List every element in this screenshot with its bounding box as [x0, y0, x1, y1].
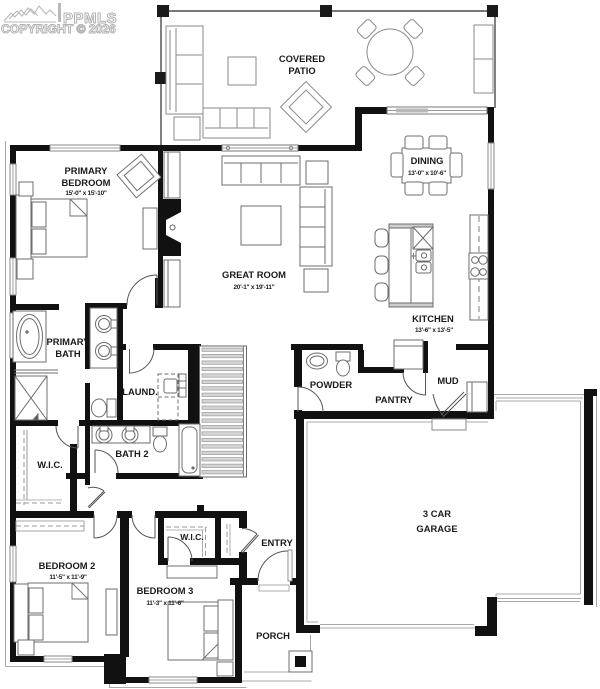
- svg-text:PANTRY: PANTRY: [375, 394, 413, 405]
- svg-text:13'-6" x 13'-5": 13'-6" x 13'-5": [415, 327, 453, 334]
- svg-text:15'-0" x 15'-10": 15'-0" x 15'-10": [65, 190, 107, 197]
- svg-text:GREAT ROOM: GREAT ROOM: [222, 269, 286, 280]
- svg-text:PRIMARY: PRIMARY: [65, 165, 109, 176]
- svg-text:PORCH: PORCH: [256, 630, 290, 641]
- svg-text:W.I.C.: W.I.C.: [37, 459, 63, 470]
- svg-text:BEDROOM 2: BEDROOM 2: [39, 560, 96, 571]
- svg-text:20'-1" x 19'-11": 20'-1" x 19'-11": [234, 284, 275, 291]
- svg-text:PATIO: PATIO: [288, 65, 315, 76]
- svg-text:DINING: DINING: [411, 155, 444, 166]
- svg-text:BATH 2: BATH 2: [115, 448, 148, 459]
- svg-text:W.I.C.: W.I.C.: [180, 532, 203, 542]
- svg-text:BEDROOM 3: BEDROOM 3: [137, 585, 194, 596]
- svg-text:LAUND.: LAUND.: [122, 386, 157, 397]
- svg-text:MUD: MUD: [437, 375, 459, 386]
- svg-text:KITCHEN: KITCHEN: [412, 313, 454, 324]
- svg-text:COPYRIGHT © 2026: COPYRIGHT © 2026: [1, 22, 116, 36]
- svg-text:11'-5" x 11'-9": 11'-5" x 11'-9": [49, 574, 87, 581]
- svg-text:GARAGE: GARAGE: [416, 523, 457, 534]
- svg-text:POWDER: POWDER: [310, 379, 352, 390]
- svg-text:PRIMARY: PRIMARY: [47, 336, 91, 347]
- svg-text:COVERED: COVERED: [279, 53, 326, 64]
- svg-text:3 CAR: 3 CAR: [423, 508, 451, 519]
- svg-text:ENTRY: ENTRY: [261, 537, 293, 548]
- svg-text:BATH: BATH: [55, 348, 81, 359]
- svg-text:11'-3" x 11'-6": 11'-3" x 11'-6": [146, 600, 184, 607]
- svg-text:BEDROOM: BEDROOM: [62, 177, 111, 188]
- svg-text:13'-0" x 10'-6": 13'-0" x 10'-6": [408, 170, 446, 177]
